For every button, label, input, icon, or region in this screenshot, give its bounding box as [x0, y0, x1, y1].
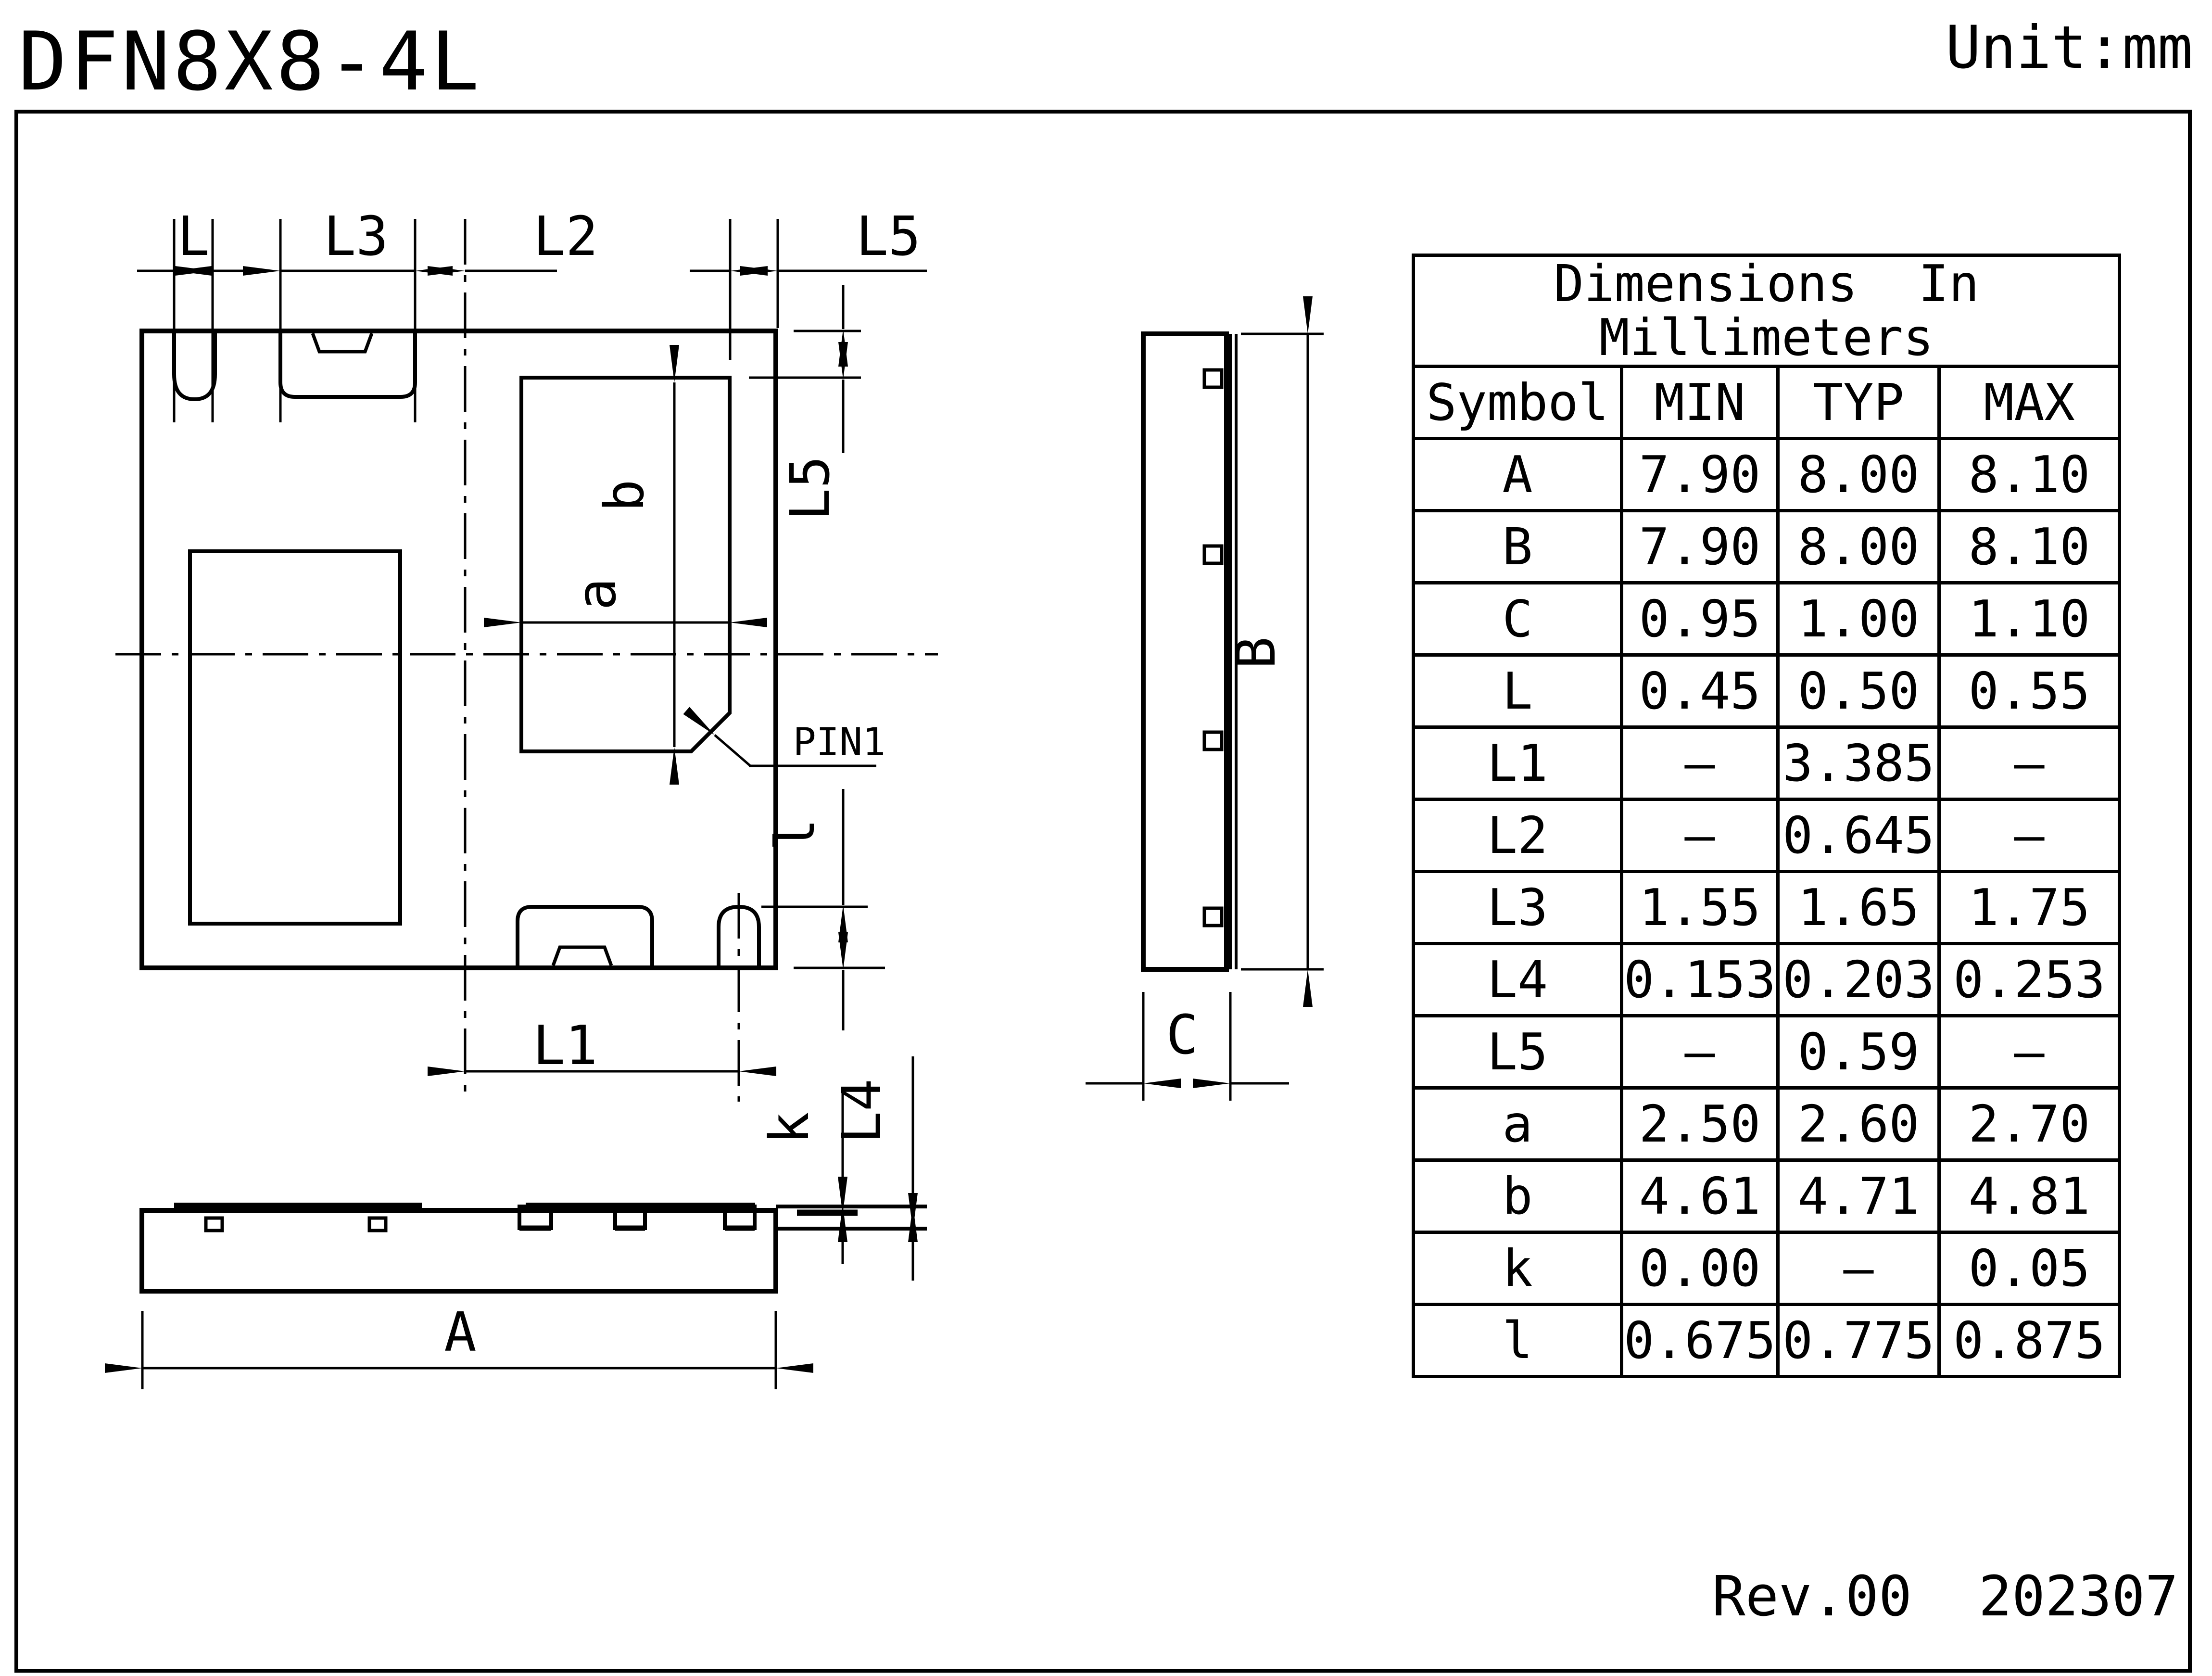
- table-header-row: Symbol MIN TYP MAX: [1414, 367, 2120, 439]
- table-row: L1–3.385–: [1414, 727, 2120, 800]
- label-k: k: [758, 1112, 821, 1144]
- col-header-max: MAX: [1939, 367, 2120, 439]
- table-row: A7.908.008.10: [1414, 439, 2120, 511]
- elevation-labels: A k L4: [444, 1079, 893, 1364]
- col-header-min: MIN: [1622, 367, 1778, 439]
- side-view-extension-lines: [1143, 334, 1324, 1101]
- oval-pad-top-left: [174, 331, 215, 399]
- notched-pad-top: [280, 331, 415, 397]
- table-row: B7.908.008.10: [1414, 511, 2120, 583]
- table-row: C0.951.001.10: [1414, 583, 2120, 655]
- elevation-view: A k L4: [142, 1056, 927, 1389]
- dimension-lines-top-view: [137, 271, 927, 1071]
- pin1-leader-arrow: [715, 735, 750, 766]
- table-title: Dimensions InMillimeters: [1414, 255, 2120, 367]
- elevation-body: [142, 1210, 776, 1291]
- label-L2: L2: [533, 205, 598, 268]
- col-header-typ: TYP: [1778, 367, 1939, 439]
- label-L1: L1: [533, 1015, 598, 1077]
- left-pad: [190, 551, 400, 924]
- die-pad-chamfered: [521, 378, 730, 751]
- col-header-symbol: Symbol: [1414, 367, 1622, 439]
- table-row: L0.450.500.55: [1414, 655, 2120, 727]
- table-row: L31.551.651.75: [1414, 872, 2120, 944]
- package-outline: [142, 331, 776, 968]
- dimensions-table: Dimensions InMillimeters Symbol MIN TYP …: [1412, 254, 2121, 1378]
- label-L5-top: L5: [856, 205, 921, 268]
- top-view-labels: L L3 L2 L5 L5 l b a L1 PIN1: [177, 205, 921, 1077]
- notch-top: [313, 333, 372, 352]
- label-A: A: [444, 1301, 476, 1364]
- label-b: b: [594, 479, 656, 511]
- side-view-leads: [1204, 370, 1222, 926]
- table-row: b4.614.714.81: [1414, 1160, 2120, 1232]
- label-C: C: [1166, 1004, 1198, 1067]
- label-pin1: PIN1: [793, 720, 886, 764]
- label-L5-right: L5: [779, 456, 842, 521]
- label-L: L: [177, 205, 209, 268]
- table-row: L5–0.59–: [1414, 1016, 2120, 1088]
- top-view: L L3 L2 L5 L5 l b a L1 PIN1: [115, 205, 938, 1102]
- table-row: k0.00–0.05: [1414, 1232, 2120, 1305]
- table-row: L40.1530.2030.253: [1414, 944, 2120, 1016]
- label-L3: L3: [324, 205, 389, 268]
- table-title-row: Dimensions InMillimeters: [1414, 255, 2120, 367]
- table-row: a2.502.602.70: [1414, 1088, 2120, 1160]
- notch-bottom: [553, 947, 611, 965]
- label-L4: L4: [831, 1079, 893, 1144]
- side-view-body: [1143, 334, 1226, 969]
- label-l: l: [764, 818, 827, 851]
- elevation-pad-1: [206, 1218, 222, 1231]
- elevation-pad-2: [369, 1218, 386, 1231]
- label-B: B: [1225, 636, 1288, 669]
- notched-pad-bottom: [518, 907, 652, 968]
- table-row: L2–0.645–: [1414, 800, 2120, 872]
- side-view: B C: [1086, 334, 1324, 1101]
- label-a: a: [566, 578, 628, 610]
- elevation-lead-protrusion: [776, 1206, 927, 1229]
- table-row: l0.6750.7750.875: [1414, 1305, 2120, 1377]
